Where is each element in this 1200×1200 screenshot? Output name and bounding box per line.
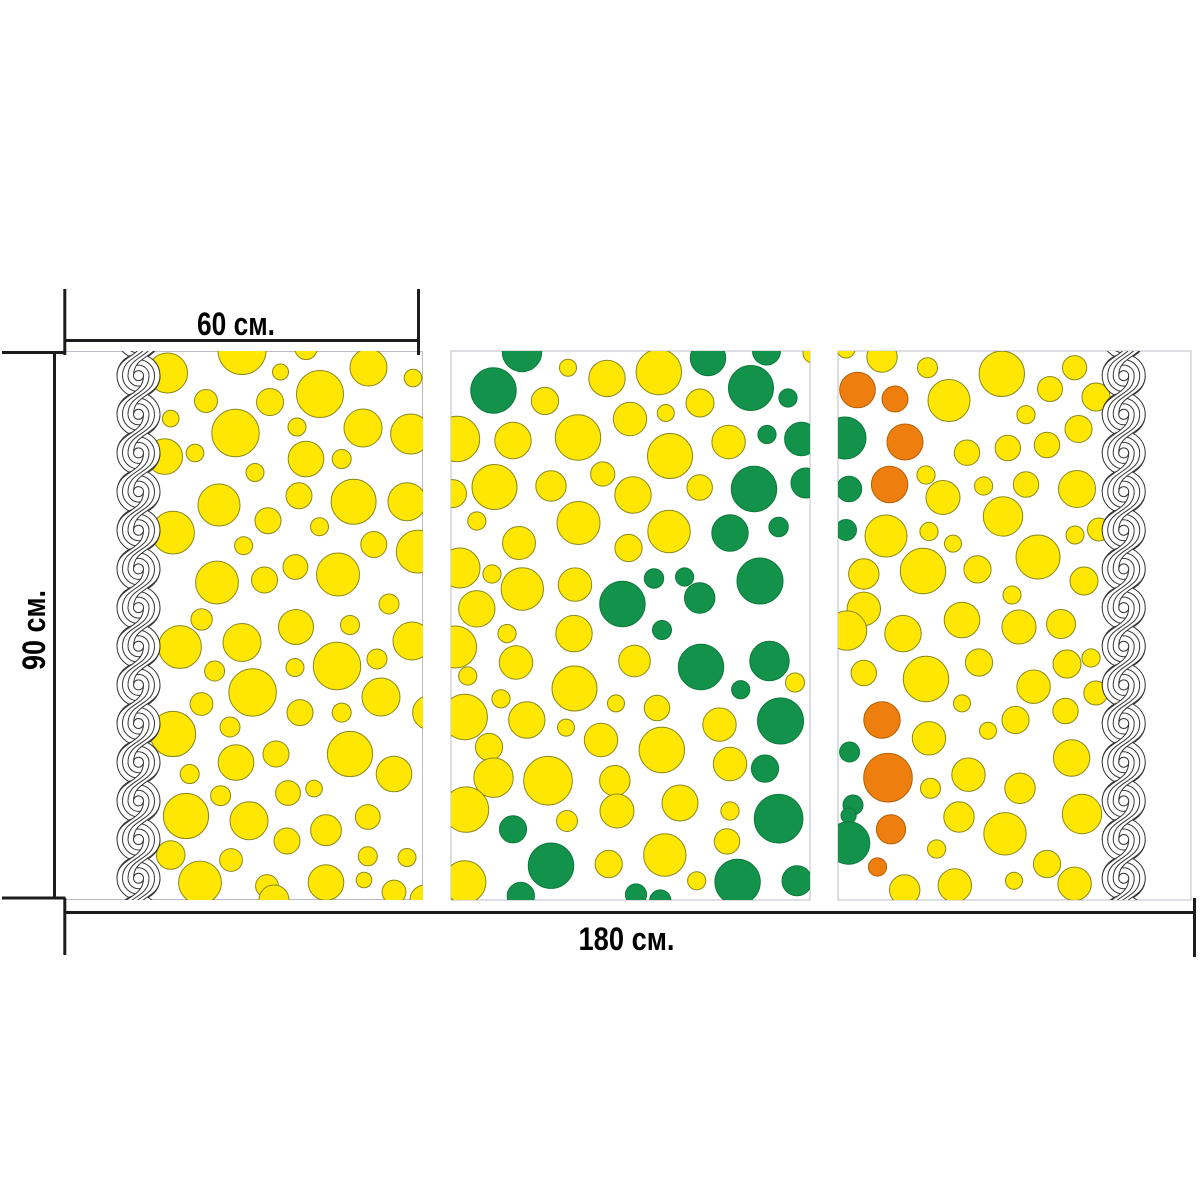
svg-text:90 см.: 90 см. — [16, 590, 52, 670]
svg-text:60 см.: 60 см. — [197, 306, 275, 342]
svg-text:180 см.: 180 см. — [579, 921, 675, 957]
